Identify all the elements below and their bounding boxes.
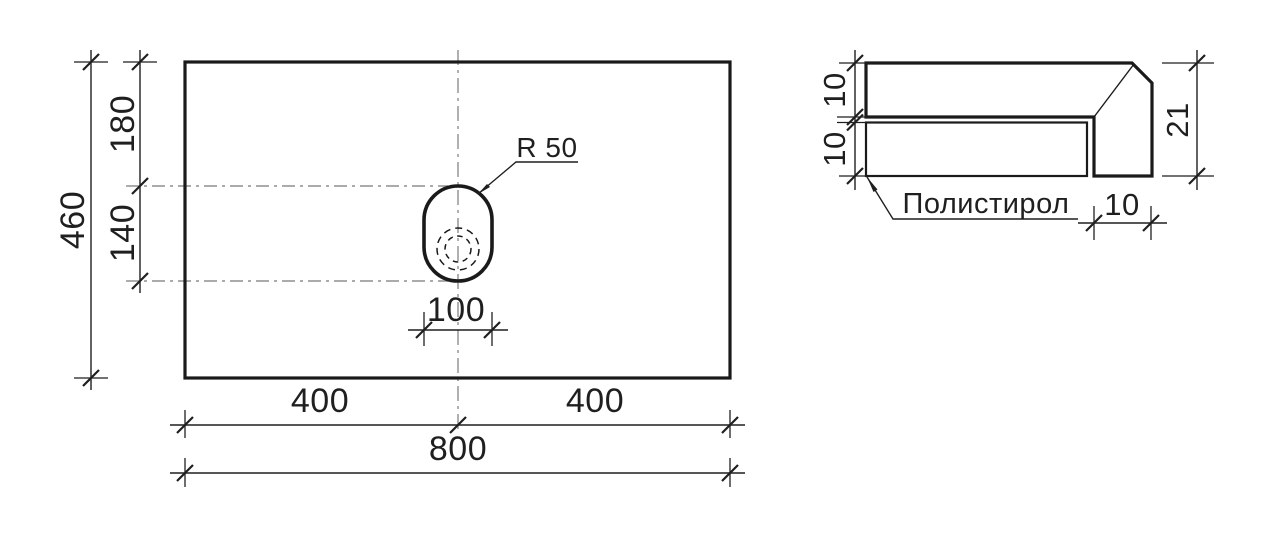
radius-leader-arrowhead-icon — [478, 184, 490, 194]
dim-top-offset-value: 180 — [104, 95, 142, 153]
dim-half-left-value: 400 — [291, 382, 349, 420]
dim-width-total: 800 — [170, 430, 745, 487]
dim-width-total-value: 800 — [429, 430, 487, 468]
edge-miter-line — [1094, 64, 1134, 117]
dim-edge-width: 10 — [1078, 187, 1167, 240]
dim-edge-width-value: 10 — [1104, 187, 1139, 222]
radius-label: R 50 — [516, 132, 577, 163]
dim-hole-height-value: 140 — [104, 204, 142, 262]
dim-total-thickness-value: 21 — [1160, 102, 1195, 137]
dim-height-total: 460 — [54, 50, 108, 390]
dim-height-total-value: 460 — [54, 191, 92, 249]
plan-view: R 50 100 400 400 — [54, 50, 745, 487]
dim-half-right-value: 400 — [566, 382, 624, 420]
dim-height-segments: 180 140 — [104, 50, 157, 293]
radius-leader: R 50 — [478, 132, 578, 194]
dim-slab-thickness-value: 10 — [817, 72, 852, 107]
technical-drawing: R 50 100 400 400 — [0, 0, 1280, 559]
dim-hole-width-value: 100 — [427, 291, 485, 329]
section-view: Полистирол 10 10 21 — [817, 50, 1214, 240]
material-label: Полистирол — [903, 188, 1070, 220]
dim-backing-thickness-value: 10 — [817, 131, 852, 166]
material-leader-arrowhead-icon — [867, 177, 878, 192]
material-leader: Полистирол — [867, 177, 1078, 220]
dim-total-thickness: 21 — [1160, 50, 1214, 190]
radius-leader-line — [478, 162, 578, 194]
polystyrene-backing — [866, 123, 1087, 177]
drawing-sheet: R 50 100 400 400 — [0, 0, 1280, 559]
